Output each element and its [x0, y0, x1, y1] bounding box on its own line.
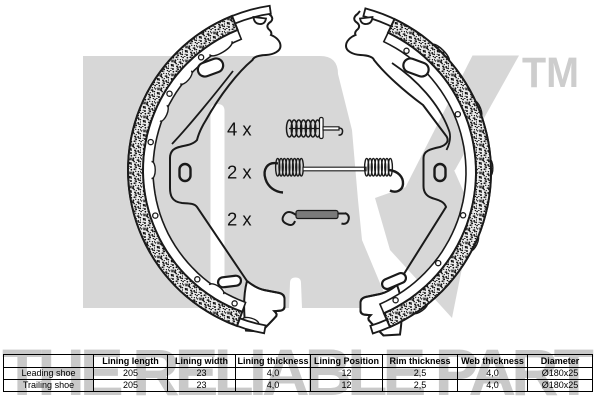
- svg-text:2 x: 2 x: [227, 209, 252, 230]
- svg-text:2 x: 2 x: [227, 162, 252, 183]
- svg-text:4 x: 4 x: [227, 119, 252, 140]
- svg-text:TM: TM: [522, 49, 579, 97]
